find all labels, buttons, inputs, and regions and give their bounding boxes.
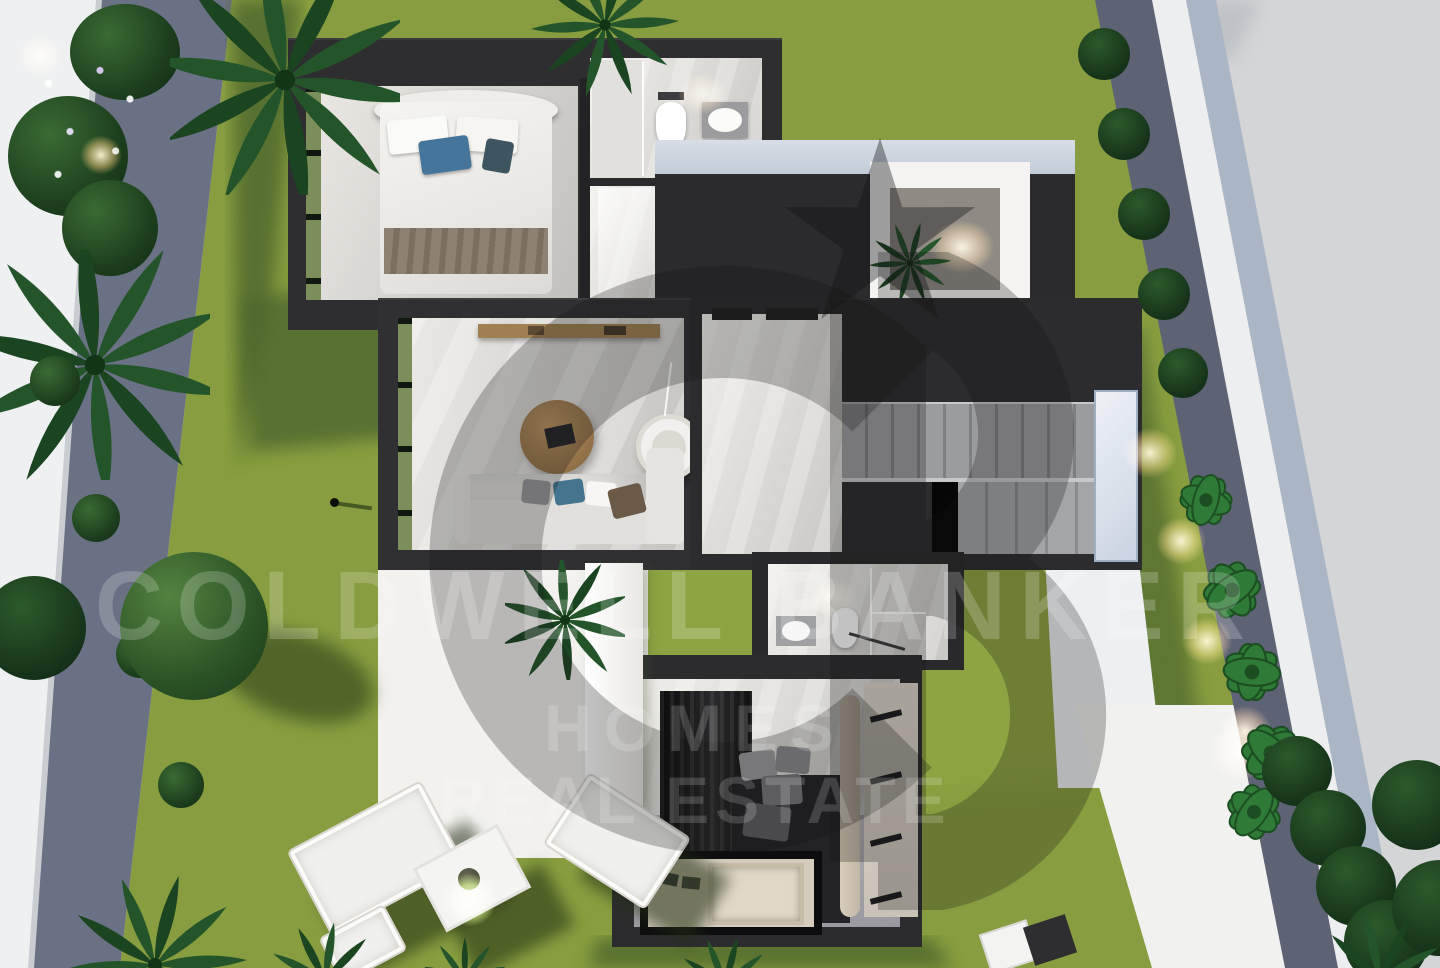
sofa-teal-pillow bbox=[552, 478, 585, 506]
watermark-sub-line-2: REAL ESTATE bbox=[330, 764, 1060, 836]
house-block-stairs bbox=[690, 298, 1142, 570]
stair-hall-floor bbox=[702, 314, 842, 554]
lower-flight bbox=[958, 482, 1114, 554]
left-bush-1 bbox=[30, 356, 80, 406]
garden-lamp-2 bbox=[72, 128, 130, 182]
upper-flight bbox=[842, 402, 1114, 480]
right-bush-2 bbox=[1098, 108, 1150, 160]
palm-bottom-1 bbox=[60, 870, 250, 968]
garden-lamp-1 bbox=[8, 26, 72, 86]
palm-bottom-2 bbox=[250, 905, 400, 968]
door-frame-1 bbox=[712, 308, 752, 320]
bedroom-bath-divider-wall bbox=[580, 78, 590, 330]
sofa-chaise bbox=[646, 448, 684, 544]
palm-bottom-4 bbox=[655, 915, 795, 968]
shelf-decor-2 bbox=[604, 326, 626, 335]
media-shelf bbox=[478, 324, 660, 338]
palm-bottom-3 bbox=[400, 915, 530, 968]
watermark-sub-line-1: HOMES bbox=[330, 692, 1060, 764]
right-bush-4 bbox=[1138, 268, 1190, 320]
sofa-gray-pillow bbox=[521, 479, 551, 506]
shelf-decor bbox=[528, 326, 544, 335]
right-bush-3 bbox=[1118, 188, 1170, 240]
stairwell-void bbox=[932, 482, 958, 552]
palm-bottom-right bbox=[1300, 900, 1440, 968]
left-bush-4 bbox=[158, 762, 204, 808]
teal-accent-pillow bbox=[481, 138, 514, 174]
palm-top-mid bbox=[520, 0, 690, 110]
left-bush-2 bbox=[72, 494, 120, 542]
right-bush-5 bbox=[1158, 348, 1208, 398]
door-frame-2 bbox=[766, 308, 818, 320]
stake-light bbox=[330, 498, 339, 507]
courtyard-palm-plant bbox=[865, 218, 955, 308]
taupe-blanket bbox=[384, 228, 548, 274]
palm-left-mid bbox=[0, 250, 210, 480]
render-canvas: COLDWELL BANKER HOMES REAL ESTATE bbox=[0, 0, 1440, 968]
house-block-living bbox=[378, 298, 704, 570]
palm-top-left bbox=[170, 0, 400, 195]
living-window-wall bbox=[398, 318, 412, 550]
right-bush-1 bbox=[1078, 28, 1130, 80]
watermark-brand-line: COLDWELL BANKER bbox=[95, 552, 1259, 660]
leaf-plant-1 bbox=[1168, 462, 1244, 538]
sofa-left-arm bbox=[454, 474, 470, 544]
blue-pillow bbox=[418, 135, 472, 176]
